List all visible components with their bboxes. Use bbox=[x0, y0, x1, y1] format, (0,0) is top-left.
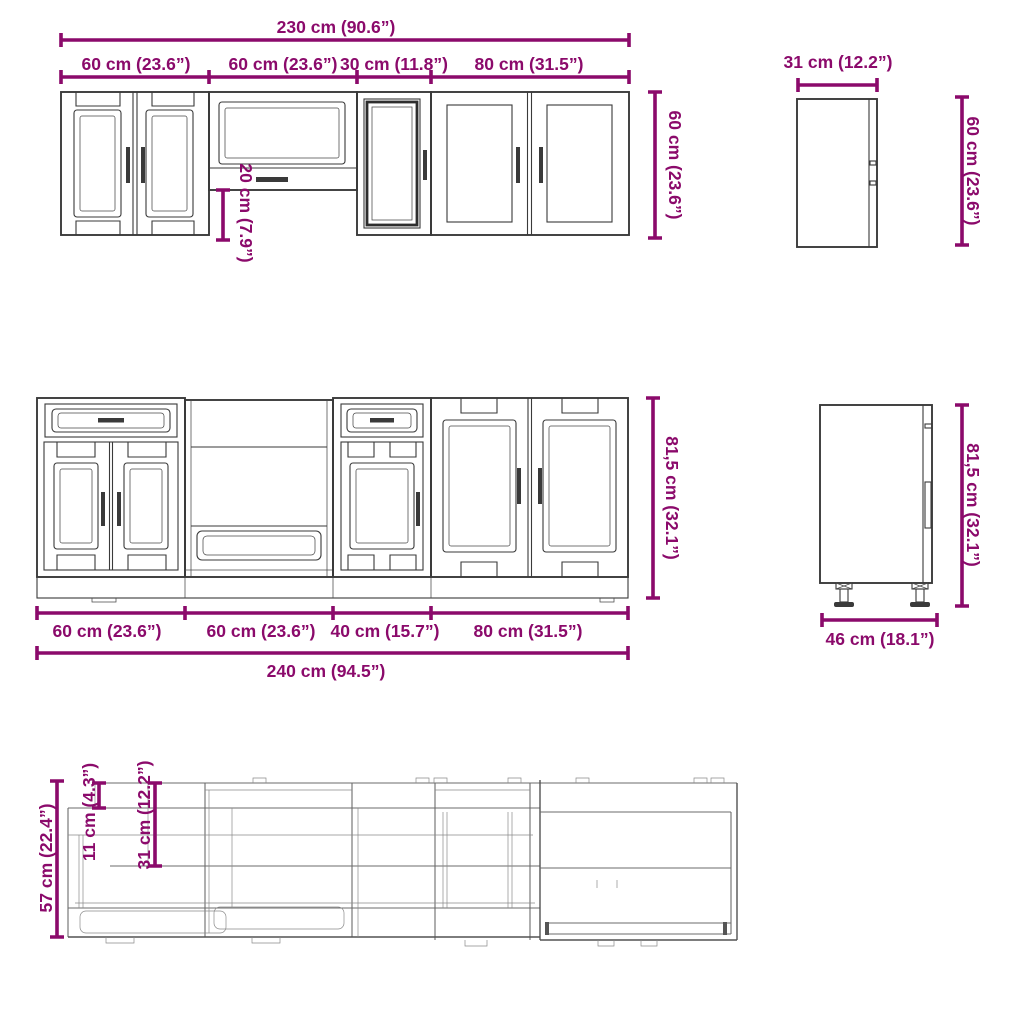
wall-segment-label-3: 30 cm (11.8”) bbox=[340, 54, 448, 74]
plan-total-depth-dimension: 57 cm (22.4”) bbox=[36, 781, 64, 937]
wall-cabinet-80-two-door bbox=[431, 92, 629, 235]
wall-height-dimension: 60 cm (23.6”) bbox=[648, 92, 685, 238]
adjustable-feet bbox=[834, 583, 930, 607]
wall-cabinet-30-glass bbox=[357, 92, 431, 235]
base-side-depth-dimension: 46 cm (18.1”) bbox=[822, 613, 937, 649]
base-cabinet-side-view: 81,5 cm (32.1”) 46 cm (18.1”) bbox=[820, 405, 983, 649]
door-handle bbox=[423, 150, 427, 180]
plan-upper-offset-dimension: 11 cm (4.3”) bbox=[79, 763, 106, 861]
door-handle bbox=[516, 147, 520, 183]
hood-clearance-dimension: 20 cm (7.9”) bbox=[216, 163, 256, 262]
plan-upper-offset-label: 11 cm (4.3”) bbox=[79, 763, 99, 861]
kitchen-cabinet-dimension-diagram: 230 cm (90.6”) 60 cm (23.6”) 60 cm (23.6… bbox=[0, 0, 1024, 1024]
wall-total-width-label: 230 cm (90.6”) bbox=[277, 17, 396, 37]
base-segment-label-1: 60 cm (23.6”) bbox=[53, 621, 162, 641]
base-cabinets-front-view: 60 cm (23.6”) 60 cm (23.6”) 40 cm (15.7”… bbox=[37, 398, 682, 681]
wall-height-label: 60 cm (23.6”) bbox=[665, 111, 685, 220]
door-handle bbox=[126, 147, 130, 183]
wall-cabinet-60-hood bbox=[209, 92, 357, 190]
base-height-label: 81,5 cm (32.1”) bbox=[662, 436, 682, 560]
door-handle bbox=[141, 147, 145, 183]
base-segment-label-3: 40 cm (15.7”) bbox=[331, 621, 440, 641]
hood-clearance-label: 20 cm (7.9”) bbox=[236, 163, 256, 262]
wall-cabinet-60-two-door bbox=[61, 92, 209, 235]
plan-top-view: 57 cm (22.4”) 11 cm (4.3”) 31 cm (12.2”) bbox=[36, 761, 737, 946]
base-cabinet-60-appliance bbox=[185, 400, 333, 577]
base-cabinet-40-drawer-door bbox=[333, 398, 431, 577]
door-handle bbox=[101, 492, 105, 526]
wall-cabinet-side-view: 31 cm (12.2”) 60 cm (23.6”) bbox=[784, 52, 983, 247]
base-height-dimension: 81,5 cm (32.1”) bbox=[646, 398, 682, 598]
base-segment-label-4: 80 cm (31.5”) bbox=[474, 621, 583, 641]
plan-wall-depth-label: 31 cm (12.2”) bbox=[134, 761, 154, 870]
plan-total-depth-label: 57 cm (22.4”) bbox=[36, 804, 56, 913]
base-plinth bbox=[37, 577, 628, 602]
base-segment-label-2: 60 cm (23.6”) bbox=[207, 621, 316, 641]
base-segment-dimensions: 60 cm (23.6”) 60 cm (23.6”) 40 cm (15.7”… bbox=[37, 606, 628, 641]
wall-total-width-dimension: 230 cm (90.6”) bbox=[61, 17, 629, 47]
wall-side-height-dimension: 60 cm (23.6”) bbox=[955, 97, 983, 245]
wall-side-body bbox=[797, 99, 877, 247]
door-handle bbox=[538, 468, 542, 504]
drawer-handle bbox=[98, 418, 124, 423]
base-side-height-label: 81,5 cm (32.1”) bbox=[963, 443, 983, 567]
wall-side-depth-dimension: 31 cm (12.2”) bbox=[784, 52, 893, 92]
wall-segment-label-1: 60 cm (23.6”) bbox=[82, 54, 191, 74]
base-cabinet-80-two-door bbox=[431, 398, 628, 577]
door-handle bbox=[117, 492, 121, 526]
base-side-depth-label: 46 cm (18.1”) bbox=[826, 629, 935, 649]
wall-segment-label-2: 60 cm (23.6”) bbox=[229, 54, 338, 74]
plan-drawing bbox=[68, 778, 737, 946]
base-total-width-dimension: 240 cm (94.5”) bbox=[37, 646, 628, 681]
wall-side-height-label: 60 cm (23.6”) bbox=[963, 117, 983, 226]
door-handle bbox=[517, 468, 521, 504]
base-side-height-dimension: 81,5 cm (32.1”) bbox=[955, 405, 983, 606]
drawer-handle bbox=[370, 418, 394, 423]
wall-segment-label-4: 80 cm (31.5”) bbox=[475, 54, 584, 74]
door-handle bbox=[416, 492, 420, 526]
base-side-body bbox=[820, 405, 932, 583]
flap-handle bbox=[256, 177, 288, 182]
wall-cabinets-front-view: 230 cm (90.6”) 60 cm (23.6”) 60 cm (23.6… bbox=[61, 17, 685, 263]
base-cabinet-60-drawer-doors bbox=[37, 398, 185, 577]
door-handle bbox=[539, 147, 543, 183]
wall-segment-dimensions: 60 cm (23.6”) 60 cm (23.6”) 30 cm (11.8”… bbox=[61, 54, 629, 84]
base-total-width-label: 240 cm (94.5”) bbox=[267, 661, 386, 681]
diagram-svg: 230 cm (90.6”) 60 cm (23.6”) 60 cm (23.6… bbox=[0, 0, 1024, 1024]
plan-wall-depth-dimension: 31 cm (12.2”) bbox=[134, 761, 162, 870]
wall-side-depth-label: 31 cm (12.2”) bbox=[784, 52, 893, 72]
